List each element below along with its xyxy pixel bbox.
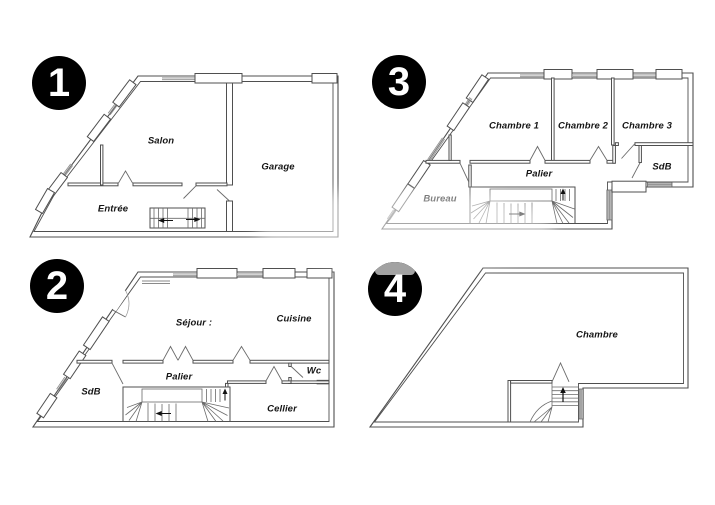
floor-plan-3: 3 Chambre 1 Chambre 2 Chambre 3 SdB Pali… (360, 50, 700, 250)
floor-plan-sheet: 1 Salon Garage Entrée (0, 0, 715, 505)
floor-plan-1: 1 Salon Garage Entrée (20, 50, 350, 250)
floor-plan-2: 2 Séjour : Cuisine Palier Wc SdB Cellier (20, 250, 350, 455)
level-number: 3 (388, 60, 410, 105)
plan-3-staircase (470, 187, 575, 224)
level-badge-4: 4 (368, 262, 422, 316)
room-label-chambre: Chambre (576, 330, 618, 341)
plan-1-staircase (150, 208, 205, 228)
room-label-salon: Salon (148, 136, 174, 147)
floor-plan-4: 4 Chambre (360, 250, 700, 455)
room-label-cellier: Cellier (267, 404, 297, 415)
room-label-cuisine: Cuisine (276, 314, 311, 325)
plan-2-staircase (123, 387, 230, 422)
room-label-chambre-1: Chambre 1 (489, 121, 539, 132)
room-label-sdb: SdB (81, 387, 100, 398)
room-label-chambre-3: Chambre 3 (622, 121, 672, 132)
level-badge-3: 3 (372, 55, 426, 109)
room-label-sdb: SdB (652, 162, 671, 173)
room-label-palier: Palier (166, 372, 192, 383)
plan-4-windows (579, 389, 583, 419)
level-number: 4 (384, 267, 406, 312)
room-label-palier: Palier (526, 169, 552, 180)
room-label-garage: Garage (261, 162, 294, 173)
level-number: 2 (46, 264, 68, 309)
level-badge-1: 1 (32, 56, 86, 110)
room-label-wc: Wc (307, 366, 321, 377)
room-label-bureau: Bureau (423, 194, 456, 205)
room-label-entree: Entrée (98, 204, 128, 215)
room-label-sejour: Séjour : (176, 318, 212, 329)
room-label-chambre-2: Chambre 2 (558, 121, 608, 132)
level-badge-2: 2 (30, 259, 84, 313)
level-number: 1 (48, 61, 70, 106)
